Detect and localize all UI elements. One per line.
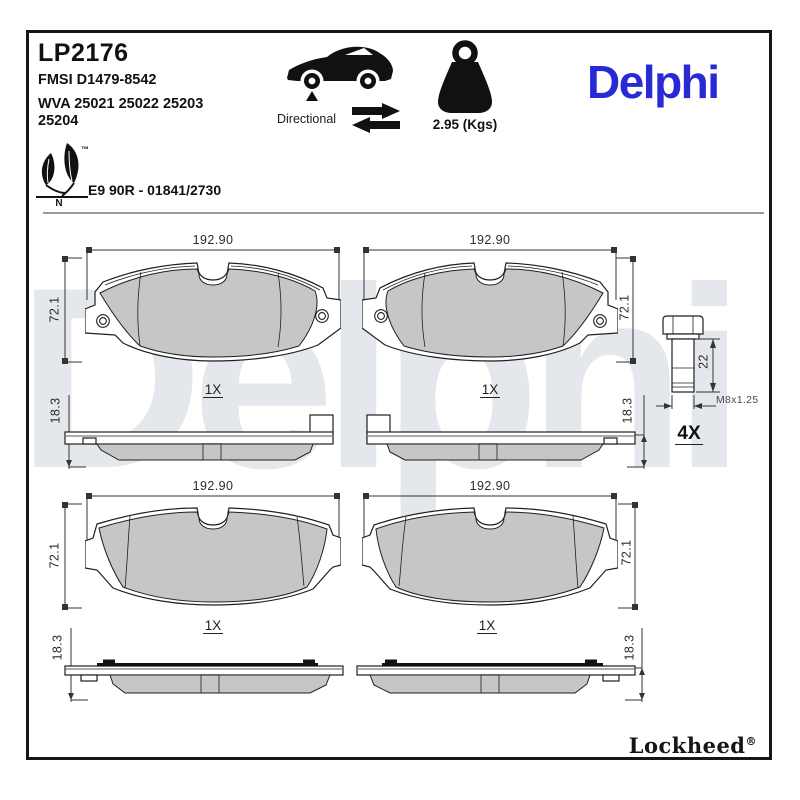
pad4-qty: 1X	[467, 618, 507, 633]
delphi-logo: Delphi	[587, 55, 719, 109]
pad1-height-dim: 72.1	[48, 290, 61, 330]
part-number: LP2176	[38, 39, 129, 68]
drawing-area: Delphi 192.90 72.1 1X 18.3	[29, 213, 769, 756]
directional-arrows-icon	[352, 100, 400, 136]
pad1-width-dim: 192.90	[153, 233, 273, 247]
directional-label: Directional	[277, 112, 336, 126]
pad3-thickness-dim: 18.3	[51, 628, 64, 668]
bolt-qty: 4X	[661, 423, 717, 445]
datasheet-page: LP2176 FMSI D1479-8542 WVA 25021 25022 2…	[0, 0, 800, 800]
wva-number-line2: 25204	[38, 113, 78, 130]
pad4-height-dim: 72.1	[620, 533, 633, 573]
pad2-height-dim: 72.1	[618, 288, 631, 328]
pad1-qty: 1X	[193, 382, 233, 397]
pad3-qty: 1X	[193, 618, 233, 633]
pad1-thickness-dim: 18.3	[49, 391, 62, 431]
bolt-length-dim: 22	[697, 347, 710, 377]
eco-trademark: ™	[81, 145, 89, 154]
pad1-front-view	[85, 258, 341, 362]
pad3-front-view	[85, 504, 341, 608]
pad1-side-view	[63, 414, 335, 466]
pad2-side-view	[365, 414, 637, 466]
eco-letter-n: N	[29, 198, 89, 209]
weight-value: 2.95 (Kgs)	[419, 117, 511, 132]
registered-mark: ®	[746, 735, 758, 748]
pad3-height-dim: 72.1	[48, 536, 61, 576]
pad2-width-dim: 192.90	[430, 233, 550, 247]
fmsi-number: FMSI D1479-8542	[38, 72, 156, 89]
pad3-width-dim: 192.90	[153, 479, 273, 493]
car-icon	[285, 37, 395, 105]
approval-code: E9 90R - 01841/2730	[88, 182, 221, 198]
pad4-front-view	[362, 504, 618, 608]
pad4-side-view	[355, 658, 637, 700]
pad2-front-view	[362, 258, 618, 362]
wva-number-line1: WVA 25021 25022 25203	[38, 96, 203, 113]
lockheed-logo: Lockheed®	[587, 733, 757, 756]
pad2-qty: 1X	[470, 382, 510, 397]
weight-icon	[428, 40, 502, 116]
pad3-side-view	[63, 658, 345, 700]
bolt-thread-label: M8x1.25	[716, 394, 758, 406]
pad4-width-dim: 192.90	[430, 479, 550, 493]
sheet-frame: LP2176 FMSI D1479-8542 WVA 25021 25022 2…	[26, 30, 772, 760]
